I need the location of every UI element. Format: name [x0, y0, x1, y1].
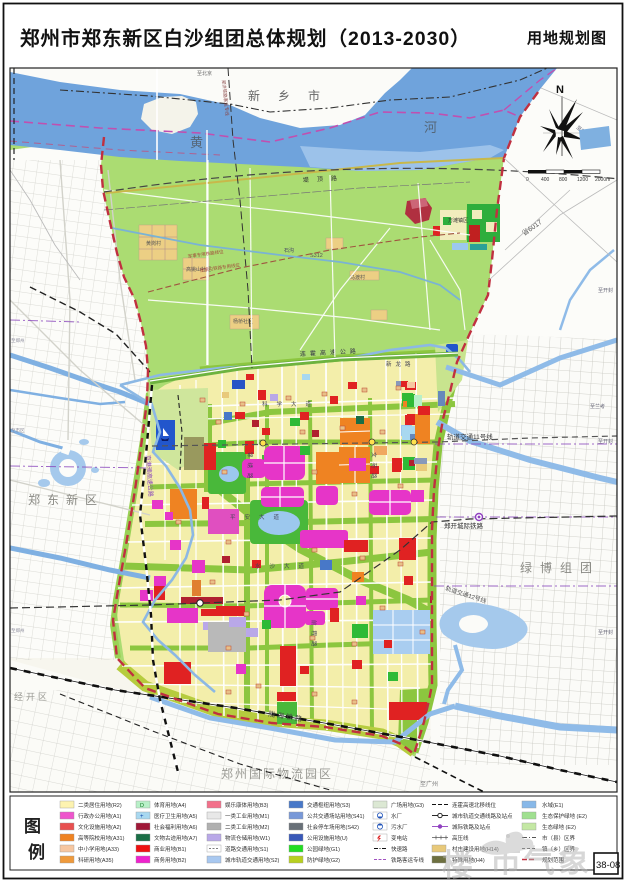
svg-text:二类工业用地(M2): 二类工业用地(M2) — [225, 823, 269, 831]
svg-text:道路交通用地(S1): 道路交通用地(S1) — [225, 845, 269, 853]
svg-text:新乡市: 新乡市 — [248, 88, 338, 103]
svg-text:38-08: 38-08 — [596, 860, 620, 871]
svg-text:绿博组团: 绿博组团 — [520, 560, 600, 575]
svg-text:至市区: 至市区 — [11, 427, 25, 434]
svg-text:D: D — [140, 803, 144, 809]
svg-text:用地规划图: 用地规划图 — [527, 29, 607, 47]
svg-text:石沟: 石沟 — [284, 247, 294, 254]
svg-text:2000m: 2000m — [595, 177, 610, 183]
svg-text:万滩镇区: 万滩镇区 — [448, 217, 468, 224]
svg-text:科研用地(A35): 科研用地(A35) — [78, 856, 114, 864]
svg-text:交通枢纽用地(S3): 交通枢纽用地(S3) — [307, 801, 351, 809]
svg-text:商业用地(B1): 商业用地(B1) — [154, 845, 187, 853]
svg-text:800: 800 — [559, 177, 568, 183]
svg-text:至兰考: 至兰考 — [590, 403, 605, 410]
svg-text:快速路: 快速路 — [391, 845, 408, 853]
svg-text:文物古迹用地(A7): 文物古迹用地(A7) — [154, 834, 198, 842]
svg-text:城市轨道交通线路及站点: 城市轨道交通线路及站点 — [452, 812, 513, 820]
svg-text:污水厂: 污水厂 — [391, 823, 408, 831]
svg-text:黄: 黄 — [190, 135, 205, 150]
svg-text:铁路客运专线: 铁路客运专线 — [391, 856, 425, 864]
svg-text:前程路: 前程路 — [310, 620, 318, 652]
svg-text:至郑州: 至郑州 — [11, 337, 25, 344]
svg-text:文化设施用地(A2): 文化设施用地(A2) — [78, 823, 122, 831]
svg-text:400: 400 — [541, 177, 550, 183]
svg-text:物流仓储用地(W1): 物流仓储用地(W1) — [225, 834, 270, 842]
svg-text:至北京: 至北京 — [197, 70, 212, 77]
svg-text:公园绿地(G1): 公园绿地(G1) — [307, 845, 340, 853]
svg-text:楼: 楼 — [442, 848, 473, 883]
svg-text:二类居住用地(R2): 二类居住用地(R2) — [78, 801, 122, 809]
svg-text:城市轨道交通用地(S2): 城市轨道交通用地(S2) — [225, 856, 280, 864]
svg-text:N: N — [556, 84, 564, 96]
svg-text:商务用地(B2): 商务用地(B2) — [154, 856, 187, 864]
svg-text:郑东新区: 郑东新区 — [28, 492, 104, 507]
svg-text:水域(E1): 水域(E1) — [542, 801, 564, 809]
svg-text:至开封: 至开封 — [598, 629, 613, 636]
svg-text:至开封: 至开封 — [598, 287, 613, 294]
svg-text:中小学用地(A33): 中小学用地(A33) — [78, 845, 119, 853]
svg-text:水厂: 水厂 — [391, 812, 403, 820]
svg-text:新龙路: 新龙路 — [386, 360, 415, 368]
svg-text:防护绿地(G2): 防护绿地(G2) — [307, 856, 340, 864]
svg-text:医疗卫生用地(A5): 医疗卫生用地(A5) — [154, 812, 198, 820]
svg-text:城际铁路及站点: 城际铁路及站点 — [452, 823, 491, 831]
svg-text:郑州国际物流园区: 郑州国际物流园区 — [221, 766, 333, 781]
svg-text:轨道交通11号线: 轨道交通11号线 — [447, 432, 493, 441]
svg-text:至郑州: 至郑州 — [11, 627, 25, 634]
svg-text:一类工业用地(M1): 一类工业用地(M1) — [225, 812, 269, 820]
svg-text:水沙大道: 水沙大道 — [255, 562, 313, 570]
svg-text:连霍高速北移线位: 连霍高速北移线位 — [452, 801, 497, 809]
svg-text:生态绿地 (E2): 生态绿地 (E2) — [542, 823, 576, 831]
svg-text:体育用地(A4): 体育用地(A4) — [154, 801, 187, 809]
svg-text:广场用地(G3): 广场用地(G3) — [391, 801, 424, 809]
svg-text:经开区: 经开区 — [14, 691, 50, 702]
svg-text:公共交通场站用地(S41): 公共交通场站用地(S41) — [307, 812, 365, 820]
svg-text:市（县）区界: 市（县）区界 — [542, 834, 576, 842]
svg-text:锦绣路: 锦绣路 — [246, 452, 254, 484]
svg-text:例: 例 — [28, 842, 45, 862]
svg-text:高等院校用地(A31): 高等院校用地(A31) — [78, 834, 125, 842]
svg-text:娱乐康体用地(B3): 娱乐康体用地(B3) — [225, 801, 269, 809]
svg-text:行政办公用地(A1): 行政办公用地(A1) — [78, 812, 122, 820]
svg-text:平安大道: 平安大道 — [230, 513, 288, 521]
svg-text:公用设施用地(U): 公用设施用地(U) — [307, 834, 348, 842]
svg-text:郑州市郑东新区白沙组团总体规划（2013-2030）: 郑州市郑东新区白沙组团总体规划（2013-2030） — [20, 27, 471, 50]
svg-text:社会停车场用地(S42): 社会停车场用地(S42) — [307, 823, 359, 831]
svg-text:郑开城际铁路: 郑开城际铁路 — [444, 521, 484, 530]
svg-text:至广州: 至广州 — [420, 780, 438, 788]
svg-text:科学大道: 科学大道 — [262, 400, 320, 408]
svg-text:+: + — [140, 814, 144, 820]
svg-text:变电站: 变电站 — [391, 834, 408, 842]
svg-text:文苑路: 文苑路 — [370, 452, 378, 484]
svg-text:黄岗村: 黄岗村 — [146, 240, 161, 247]
svg-text:河: 河 — [424, 120, 439, 135]
svg-text:至开封: 至开封 — [598, 438, 613, 445]
svg-text:生态保护绿地 (E2): 生态保护绿地 (E2) — [542, 812, 587, 820]
svg-text:图: 图 — [24, 817, 41, 836]
svg-text:高压线: 高压线 — [452, 834, 469, 842]
svg-text:1200: 1200 — [577, 177, 588, 183]
svg-text:社会福利用地(A6): 社会福利用地(A6) — [154, 823, 198, 831]
